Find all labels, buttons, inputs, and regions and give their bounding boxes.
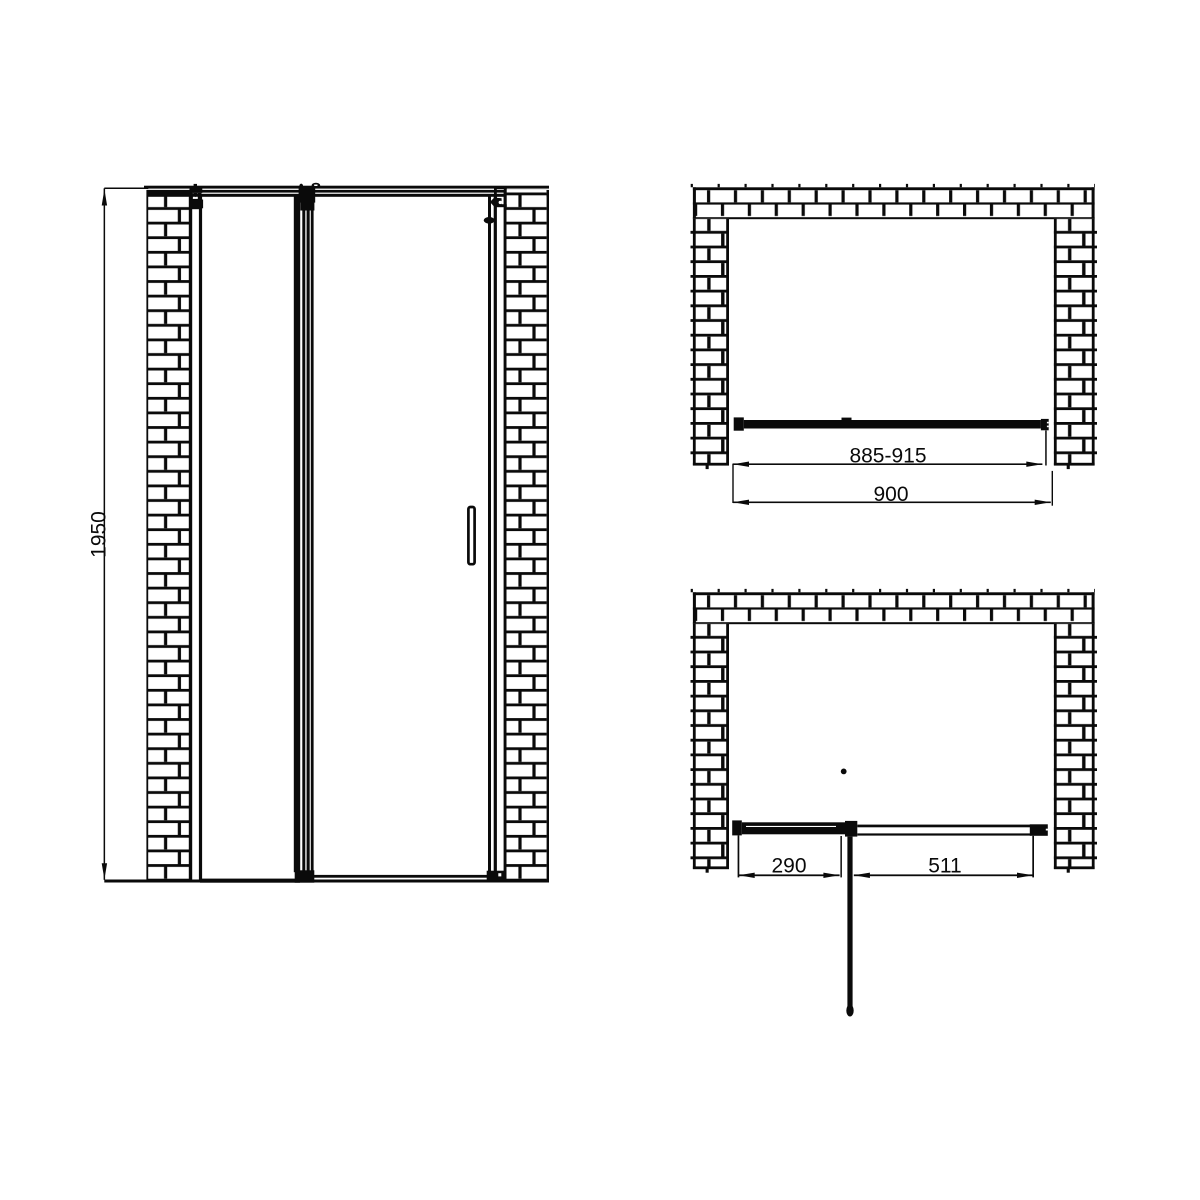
svg-text:290: 290: [771, 855, 806, 878]
svg-text:885-915: 885-915: [849, 445, 926, 468]
svg-text:1950: 1950: [87, 511, 110, 558]
svg-text:511: 511: [928, 855, 961, 878]
svg-text:900: 900: [873, 483, 908, 506]
